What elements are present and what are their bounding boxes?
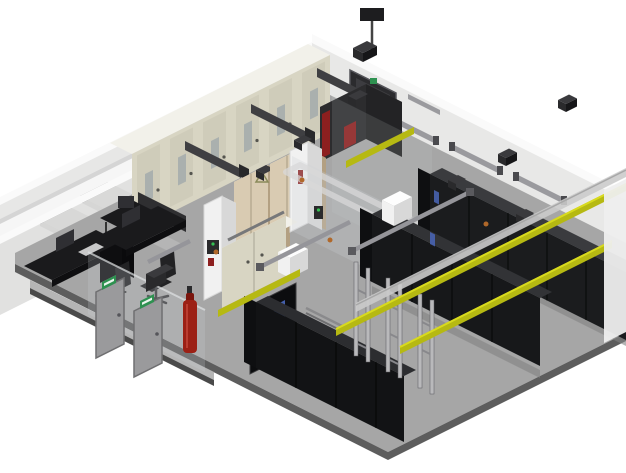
card-reader [314,206,323,219]
floor-marker [484,222,489,227]
pipe-cap [348,247,356,255]
frame-rail [430,300,434,394]
right-return-wall [604,179,626,343]
gray-door [96,278,124,358]
rack-display-blue [430,232,435,247]
door-window [244,121,252,153]
monitor [118,196,134,208]
door-handle [255,139,258,142]
door-window [178,154,186,186]
door-handle [222,155,225,158]
rack-display-blue [434,190,439,205]
pipe-cap [466,188,474,196]
gray-door [134,297,162,377]
light-bar-cap [497,166,503,175]
cylinder-valve [187,286,192,294]
door-handle [189,172,192,175]
door-handle [155,332,159,336]
floor-marker [214,250,219,255]
cabinet-handle [246,260,249,263]
datacenter-isometric-render [0,0,626,473]
camera-head [360,8,384,21]
door-handle [117,313,121,317]
cabinet-handle [260,253,263,256]
scene-canvas [0,0,626,473]
pipe-cap [256,263,264,271]
light-bar-cap [513,172,519,181]
status-led [211,242,214,245]
rack-row-side [244,296,256,368]
status-led [317,208,320,211]
floor-marker [328,238,333,243]
cylinder-body [183,300,197,353]
light-bar-cap [433,136,439,145]
column-red-component [208,258,214,266]
red-accent-panel [322,110,330,158]
floor-marker [300,178,305,183]
light-bar-cap [449,142,455,151]
exit-sign [370,78,377,84]
door-handle [156,188,159,191]
door-window [310,88,318,120]
